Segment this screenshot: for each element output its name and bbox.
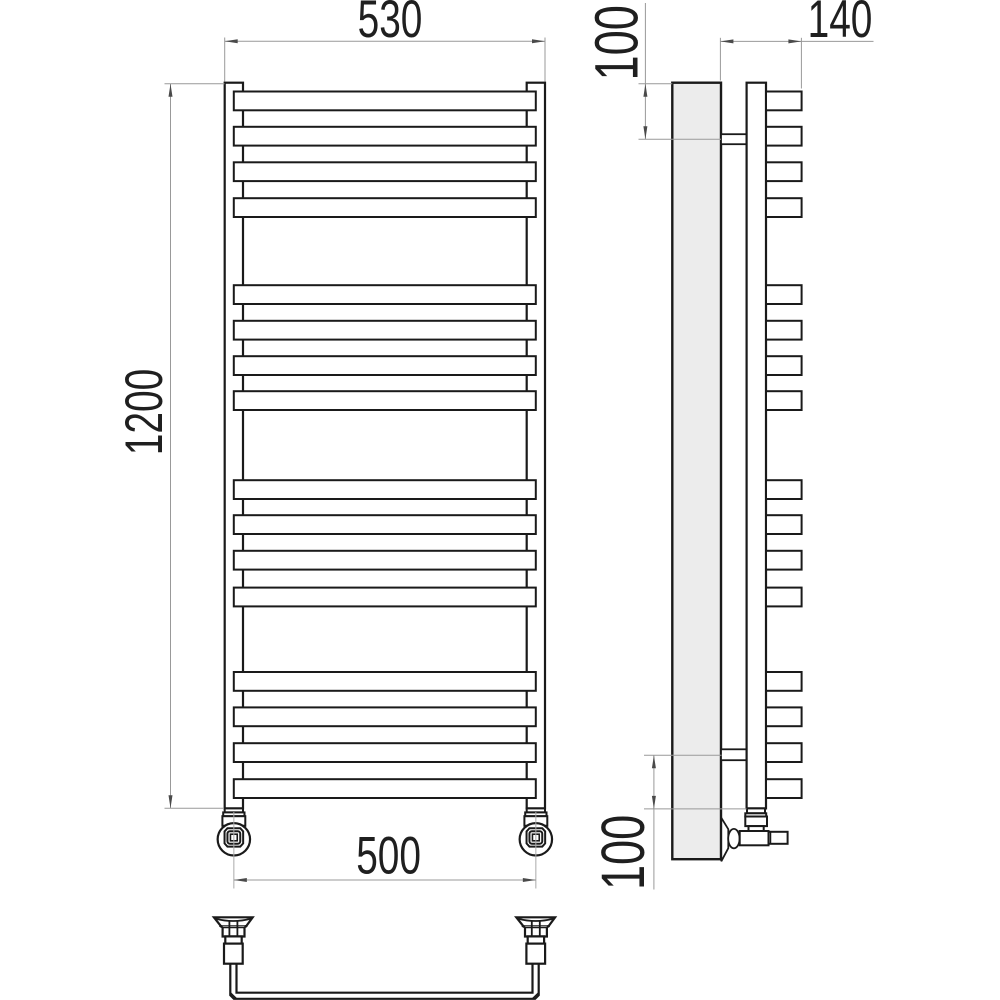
svg-text:140: 140: [808, 0, 873, 48]
svg-text:1200: 1200: [114, 369, 173, 455]
svg-text:500: 500: [356, 826, 421, 885]
svg-text:100: 100: [583, 5, 651, 80]
svg-text:100: 100: [589, 815, 657, 890]
svg-text:530: 530: [358, 0, 423, 48]
